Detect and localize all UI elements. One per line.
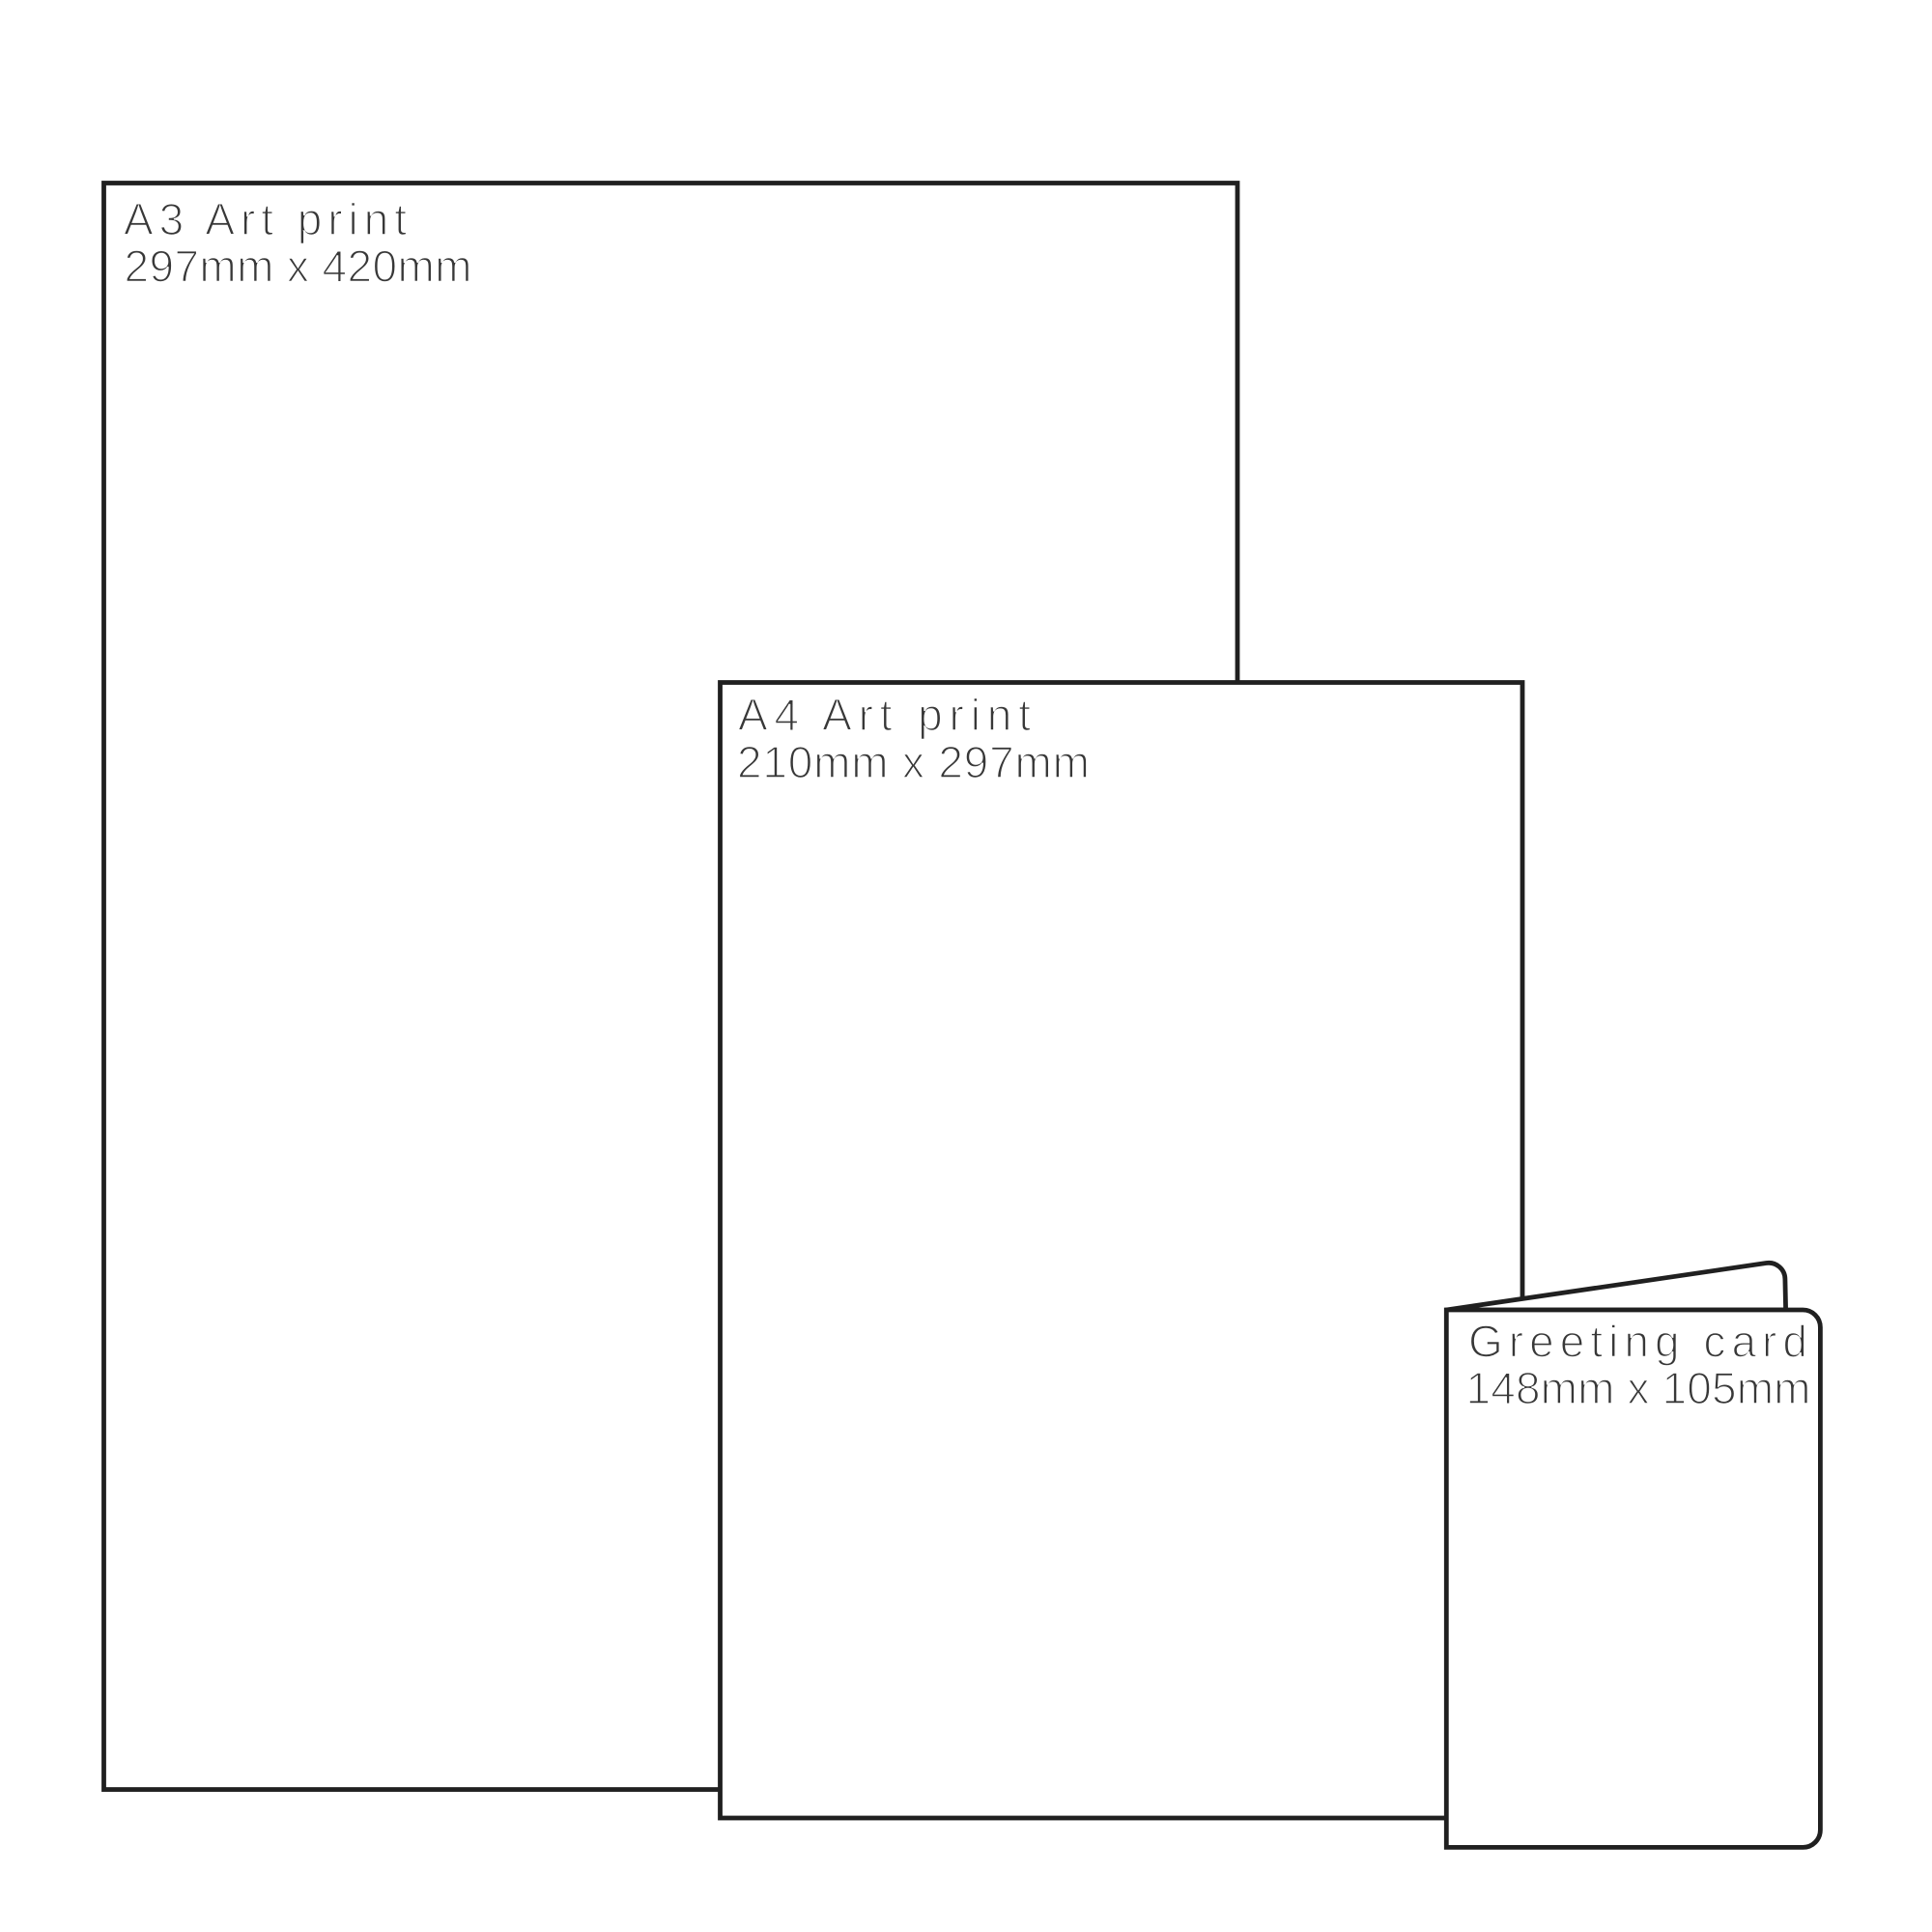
svg-text:148mm x 105mm: 148mm x 105mm bbox=[1466, 1363, 1811, 1413]
svg-text:A4 Art print: A4 Art print bbox=[738, 690, 1031, 740]
svg-text:210mm x 297mm: 210mm x 297mm bbox=[737, 737, 1090, 787]
svg-text:297mm x 420mm: 297mm x 420mm bbox=[125, 241, 472, 292]
svg-text:A3 Art print: A3 Art print bbox=[124, 194, 407, 244]
